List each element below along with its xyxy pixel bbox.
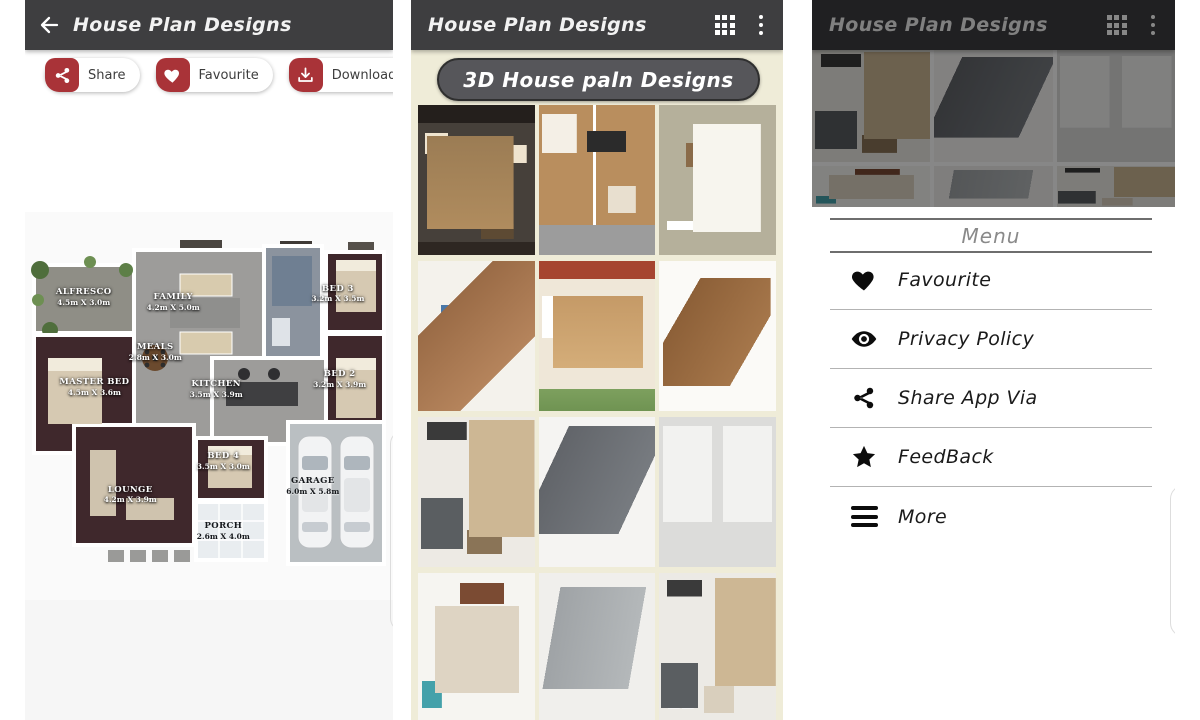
- menu-item-label: Privacy Policy: [898, 328, 1034, 350]
- room-label: GARAGE6.0m X 5.8m: [286, 476, 339, 496]
- plan-thumbnail[interactable]: [539, 417, 656, 567]
- back-button[interactable]: [25, 0, 73, 50]
- share-icon: [45, 58, 79, 92]
- room-label: ALFRESCO4.5m X 3.0m: [56, 287, 112, 307]
- card-edge: [390, 430, 393, 632]
- screen-list: House Plan Designs 3D House paln Designs: [411, 0, 783, 720]
- plan-thumbnail[interactable]: [418, 573, 535, 720]
- star-icon: [850, 443, 878, 471]
- plan-thumbnail[interactable]: [418, 105, 535, 255]
- screenshot-canvas: House Plan Designs Share Favourite Downl…: [0, 0, 1200, 720]
- download-icon: [289, 58, 323, 92]
- share-label: Share: [79, 68, 126, 83]
- favourite-label: Favourite: [190, 68, 259, 83]
- menu-item-privacy-policy[interactable]: Privacy Policy: [830, 310, 1152, 369]
- content-band-bottom: [25, 600, 393, 720]
- menu-item-favourite[interactable]: Favourite: [830, 251, 1152, 310]
- action-button-row: Share Favourite Download: [25, 50, 393, 100]
- menu-item-feedback[interactable]: FeedBack: [830, 428, 1152, 487]
- menu-item-label: Share App Via: [898, 387, 1038, 409]
- room-label: BED 43.5m X 3.0m: [197, 451, 250, 471]
- room-label: MEALS2.8m X 3.0m: [129, 342, 182, 362]
- menu-item-label: FeedBack: [898, 446, 994, 468]
- page-title: House Plan Designs: [73, 14, 292, 36]
- plan-thumbnail[interactable]: [659, 261, 776, 411]
- appbar: House Plan Designs: [411, 0, 783, 50]
- room-label: BED 33.2m X 3.5m: [311, 284, 364, 304]
- download-label: Download: [323, 68, 393, 83]
- plan-thumbnail[interactable]: [659, 105, 776, 255]
- plan-thumbnail[interactable]: [659, 573, 776, 720]
- room-label: FAMILY4.2m X 5.0m: [147, 292, 200, 312]
- share-button[interactable]: Share: [45, 58, 140, 92]
- room-label: MASTER BED4.5m X 3.6m: [59, 377, 129, 397]
- category-banner[interactable]: 3D House paln Designs: [437, 58, 760, 101]
- screen-detail: House Plan Designs Share Favourite Downl…: [25, 0, 393, 720]
- plan-thumbnail[interactable]: [539, 261, 656, 411]
- room-label: LOUNGE4.2m X 3.9m: [104, 485, 157, 505]
- room-label: KITCHEN3.5m X 3.9m: [190, 379, 243, 399]
- overflow-menu-icon[interactable]: [753, 11, 770, 40]
- plan-thumbnail[interactable]: [418, 417, 535, 567]
- menu-item-label: Favourite: [898, 269, 991, 291]
- heart-icon: [850, 266, 878, 294]
- card-edge: [1170, 485, 1175, 637]
- menu-item-more[interactable]: More: [830, 487, 1152, 546]
- plan-thumbnail[interactable]: [539, 573, 656, 720]
- category-banner-label: 3D House paln Designs: [463, 68, 733, 92]
- menu-panel: Menu Favourite Privacy Policy: [812, 207, 1175, 720]
- download-button[interactable]: Download: [289, 58, 393, 92]
- menu-scrim[interactable]: [812, 0, 1175, 207]
- share-icon: [850, 384, 878, 412]
- heart-icon: [156, 58, 190, 92]
- menu-item-label: More: [898, 506, 947, 528]
- plan-thumbnail[interactable]: [659, 417, 776, 567]
- thumbnail-grid: [418, 105, 776, 720]
- screen-menu: House Plan Designs Menu: [812, 0, 1175, 720]
- menu-item-share-app[interactable]: Share App Via: [830, 369, 1152, 428]
- menu-divider-top: [830, 218, 1152, 220]
- plan-thumbnail[interactable]: [418, 261, 535, 411]
- menu-item-list: Favourite Privacy Policy Share App Via: [830, 251, 1152, 546]
- appbar: House Plan Designs: [25, 0, 393, 50]
- plan-thumbnail[interactable]: [539, 105, 656, 255]
- page-title: House Plan Designs: [411, 14, 647, 36]
- room-label: BED 23.2m X 3.9m: [313, 369, 366, 389]
- favourite-button[interactable]: Favourite: [156, 58, 273, 92]
- menu-icon: [850, 503, 878, 531]
- room-label: PORCH2.6m X 4.0m: [197, 521, 250, 541]
- grid-icon[interactable]: [715, 15, 735, 35]
- back-arrow-icon: [37, 13, 61, 37]
- menu-title: Menu: [830, 224, 1152, 248]
- eye-icon: [850, 325, 878, 353]
- floor-plan-image[interactable]: ALFRESCO4.5m X 3.0m FAMILY4.2m X 5.0m BE…: [30, 240, 388, 575]
